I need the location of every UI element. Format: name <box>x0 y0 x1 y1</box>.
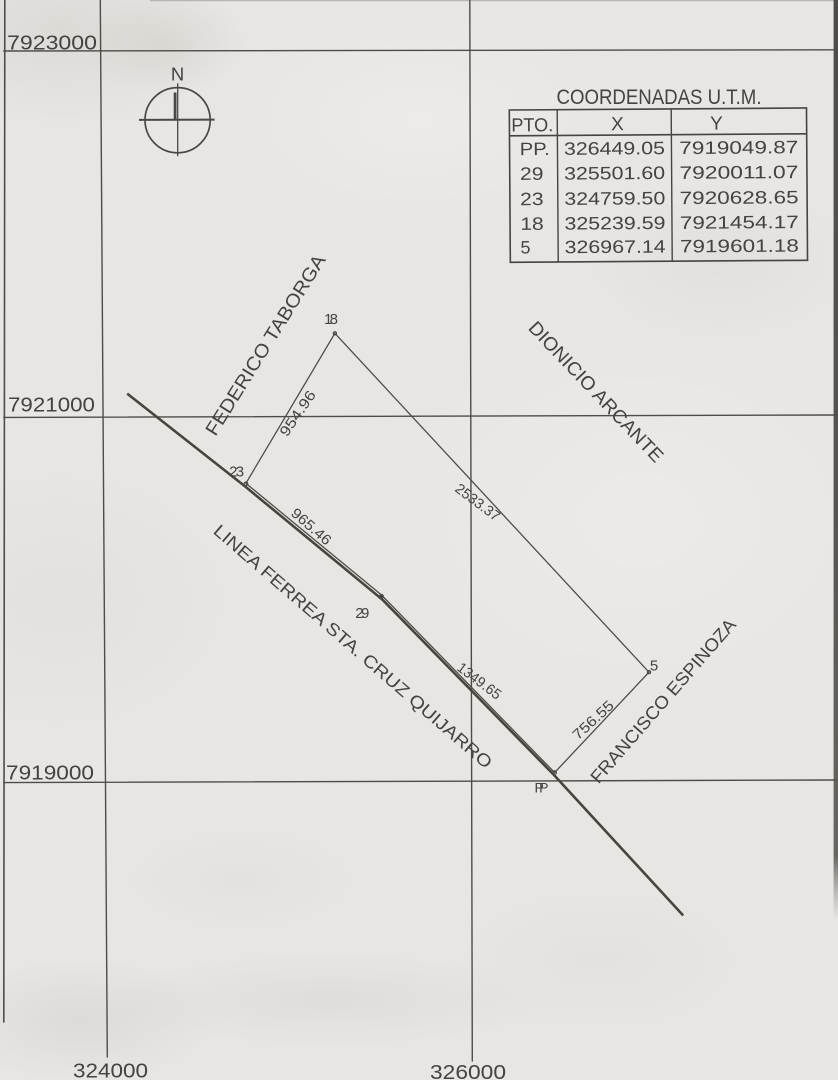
svg-text:7919000: 7919000 <box>6 763 94 785</box>
svg-text:324000: 324000 <box>73 1061 148 1080</box>
svg-text:X: X <box>611 114 624 135</box>
svg-text:5: 5 <box>520 237 530 257</box>
svg-text:COORDENADAS U.T.M.: COORDENADAS U.T.M. <box>557 86 762 109</box>
svg-text:PTO.: PTO. <box>511 115 553 136</box>
svg-text:FEDERICO TABORGA: FEDERICO TABORGA <box>202 251 331 440</box>
svg-text:7923000: 7923000 <box>7 32 97 54</box>
svg-text:326000: 326000 <box>430 1062 506 1080</box>
svg-text:29: 29 <box>355 605 369 622</box>
svg-text:7919049.87: 7919049.87 <box>679 137 798 158</box>
svg-text:N: N <box>171 63 184 84</box>
svg-text:LINEA FERREA STA. CRUZ QUIJARR: LINEA FERREA STA. CRUZ QUIJARRO <box>210 520 497 772</box>
svg-text:756.55: 756.55 <box>570 698 618 744</box>
svg-text:7919601.18: 7919601.18 <box>680 236 799 257</box>
svg-text:DIONICIO ARCANTE: DIONICIO ARCANTE <box>524 318 667 467</box>
svg-text:Y: Y <box>710 114 723 135</box>
svg-text:7920628.65: 7920628.65 <box>680 187 799 208</box>
svg-text:PP.: PP. <box>520 139 550 159</box>
svg-text:23: 23 <box>229 464 244 481</box>
svg-text:5: 5 <box>650 657 658 674</box>
svg-text:326449.05: 326449.05 <box>564 138 665 159</box>
svg-text:325239.59: 325239.59 <box>564 213 665 234</box>
svg-text:PP: PP <box>535 780 549 796</box>
svg-text:29: 29 <box>520 164 544 184</box>
svg-text:7921000: 7921000 <box>8 395 95 417</box>
svg-text:325501.60: 325501.60 <box>564 163 665 184</box>
svg-text:23: 23 <box>520 189 544 209</box>
svg-text:326967.14: 326967.14 <box>565 237 666 258</box>
svg-text:7921454.17: 7921454.17 <box>680 212 799 233</box>
svg-text:7920011.07: 7920011.07 <box>679 162 798 183</box>
svg-text:324759.50: 324759.50 <box>564 188 665 209</box>
svg-text:18: 18 <box>324 311 338 328</box>
svg-text:18: 18 <box>520 214 544 234</box>
